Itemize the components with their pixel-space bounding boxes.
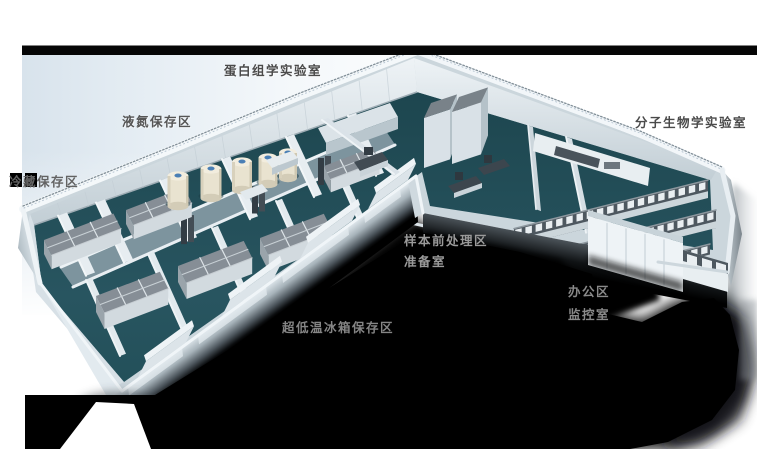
svg-text:蛋白组学实验室: 蛋白组学实验室 bbox=[224, 63, 322, 78]
svg-text:监控室: 监控室 bbox=[568, 307, 610, 322]
svg-text:准备室: 准备室 bbox=[404, 254, 446, 269]
svg-text:超低温冰箱保存区: 超低温冰箱保存区 bbox=[281, 320, 394, 335]
svg-text:液氮保存区: 液氮保存区 bbox=[122, 114, 192, 129]
svg-text:分子生物学实验室: 分子生物学实验室 bbox=[635, 115, 747, 130]
svg-text:样本前处理区: 样本前处理区 bbox=[404, 233, 488, 248]
svg-text:办公区: 办公区 bbox=[568, 284, 610, 299]
svg-text:冷藏保存区: 冷藏保存区 bbox=[9, 174, 79, 189]
